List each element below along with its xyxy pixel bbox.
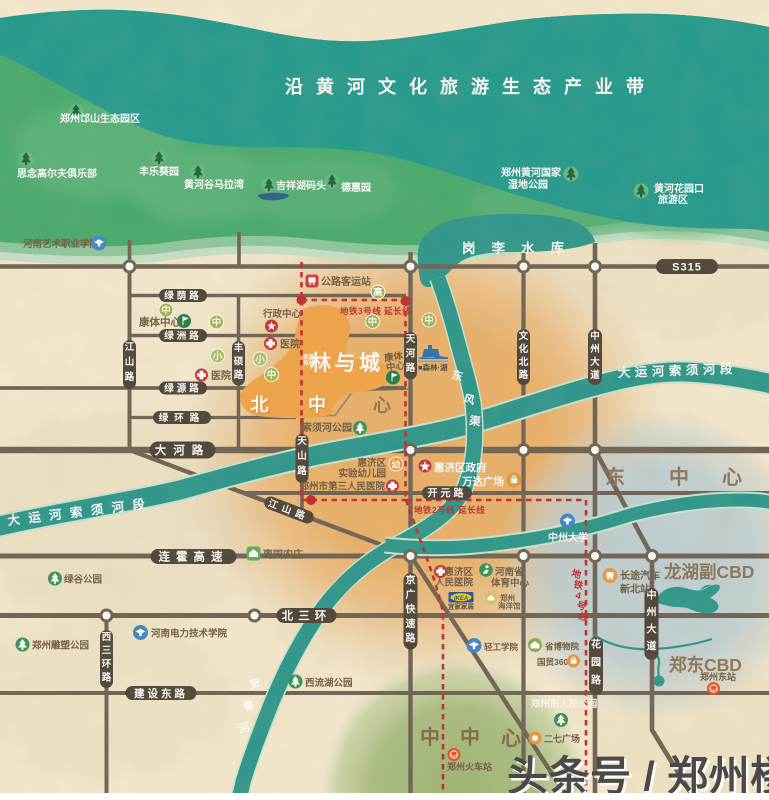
svg-text:头条号 / 郑州楼讯: 头条号 / 郑州楼讯: [507, 753, 769, 799]
